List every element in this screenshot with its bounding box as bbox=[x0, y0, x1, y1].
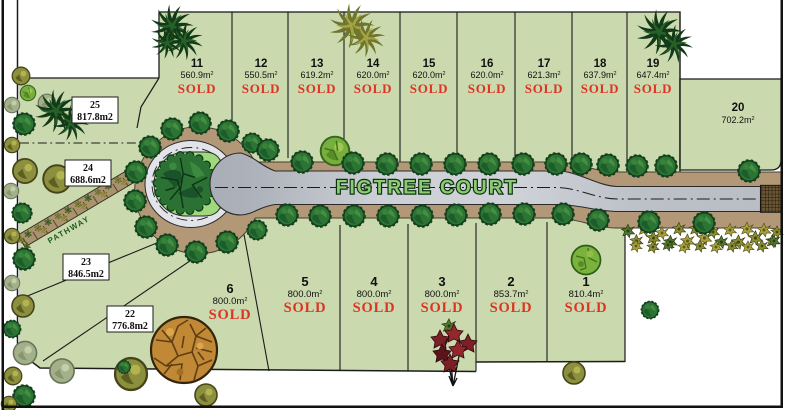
svg-text:SOLD: SOLD bbox=[490, 300, 533, 316]
svg-text:FIGTREE COURT: FIGTREE COURT bbox=[336, 178, 518, 199]
svg-text:11: 11 bbox=[191, 58, 204, 70]
svg-text:SOLD: SOLD bbox=[421, 300, 464, 316]
svg-text:SOLD: SOLD bbox=[353, 300, 396, 316]
svg-text:SOLD: SOLD bbox=[581, 81, 620, 96]
svg-text:18: 18 bbox=[594, 58, 607, 70]
svg-text:560.9m2: 560.9m2 bbox=[180, 70, 213, 80]
svg-text:776.8m2: 776.8m2 bbox=[112, 321, 148, 332]
svg-text:SOLD: SOLD bbox=[468, 81, 507, 96]
svg-text:688.6m2: 688.6m2 bbox=[70, 175, 106, 186]
svg-text:637.9m2: 637.9m2 bbox=[583, 70, 616, 80]
svg-text:621.3m2: 621.3m2 bbox=[527, 70, 560, 80]
svg-text:620.0m2: 620.0m2 bbox=[470, 70, 503, 80]
svg-text:13: 13 bbox=[311, 58, 324, 70]
svg-text:SOLD: SOLD bbox=[209, 307, 252, 323]
svg-text:20: 20 bbox=[732, 102, 745, 114]
svg-text:SOLD: SOLD bbox=[634, 81, 673, 96]
svg-text:SOLD: SOLD bbox=[525, 81, 564, 96]
svg-text:24: 24 bbox=[83, 163, 93, 174]
svg-text:12: 12 bbox=[255, 58, 268, 70]
svg-text:SOLD: SOLD bbox=[565, 300, 608, 316]
svg-text:17: 17 bbox=[538, 58, 551, 70]
svg-text:810.4m2: 810.4m2 bbox=[569, 289, 604, 300]
svg-text:800.0m2: 800.0m2 bbox=[288, 289, 323, 300]
svg-text:SOLD: SOLD bbox=[410, 81, 449, 96]
svg-text:5: 5 bbox=[301, 274, 308, 289]
svg-text:16: 16 bbox=[481, 58, 494, 70]
svg-text:702.2m2: 702.2m2 bbox=[721, 115, 754, 125]
svg-text:853.7m2: 853.7m2 bbox=[494, 289, 529, 300]
svg-text:2: 2 bbox=[507, 274, 514, 289]
svg-text:15: 15 bbox=[423, 58, 436, 70]
svg-text:SOLD: SOLD bbox=[298, 81, 337, 96]
svg-text:817.8m2: 817.8m2 bbox=[77, 112, 113, 123]
svg-text:14: 14 bbox=[367, 58, 380, 70]
svg-text:550.5m2: 550.5m2 bbox=[244, 70, 277, 80]
svg-text:19: 19 bbox=[647, 58, 660, 70]
svg-text:800.0m2: 800.0m2 bbox=[357, 289, 392, 300]
svg-text:800.0m2: 800.0m2 bbox=[213, 296, 248, 307]
svg-text:22: 22 bbox=[125, 309, 135, 320]
svg-text:SOLD: SOLD bbox=[178, 81, 217, 96]
svg-text:619.2m2: 619.2m2 bbox=[300, 70, 333, 80]
svg-text:620.0m2: 620.0m2 bbox=[356, 70, 389, 80]
svg-text:620.0m2: 620.0m2 bbox=[412, 70, 445, 80]
svg-text:23: 23 bbox=[81, 257, 91, 268]
svg-text:3: 3 bbox=[438, 274, 445, 289]
svg-text:800.0m2: 800.0m2 bbox=[425, 289, 460, 300]
svg-text:846.5m2: 846.5m2 bbox=[68, 269, 104, 280]
svg-text:SOLD: SOLD bbox=[354, 81, 393, 96]
svg-text:647.4m2: 647.4m2 bbox=[636, 70, 669, 80]
svg-text:4: 4 bbox=[370, 274, 378, 289]
svg-text:SOLD: SOLD bbox=[284, 300, 327, 316]
svg-text:SOLD: SOLD bbox=[242, 81, 281, 96]
svg-text:6: 6 bbox=[226, 281, 233, 296]
svg-text:1: 1 bbox=[582, 274, 589, 289]
svg-text:25: 25 bbox=[90, 100, 100, 111]
